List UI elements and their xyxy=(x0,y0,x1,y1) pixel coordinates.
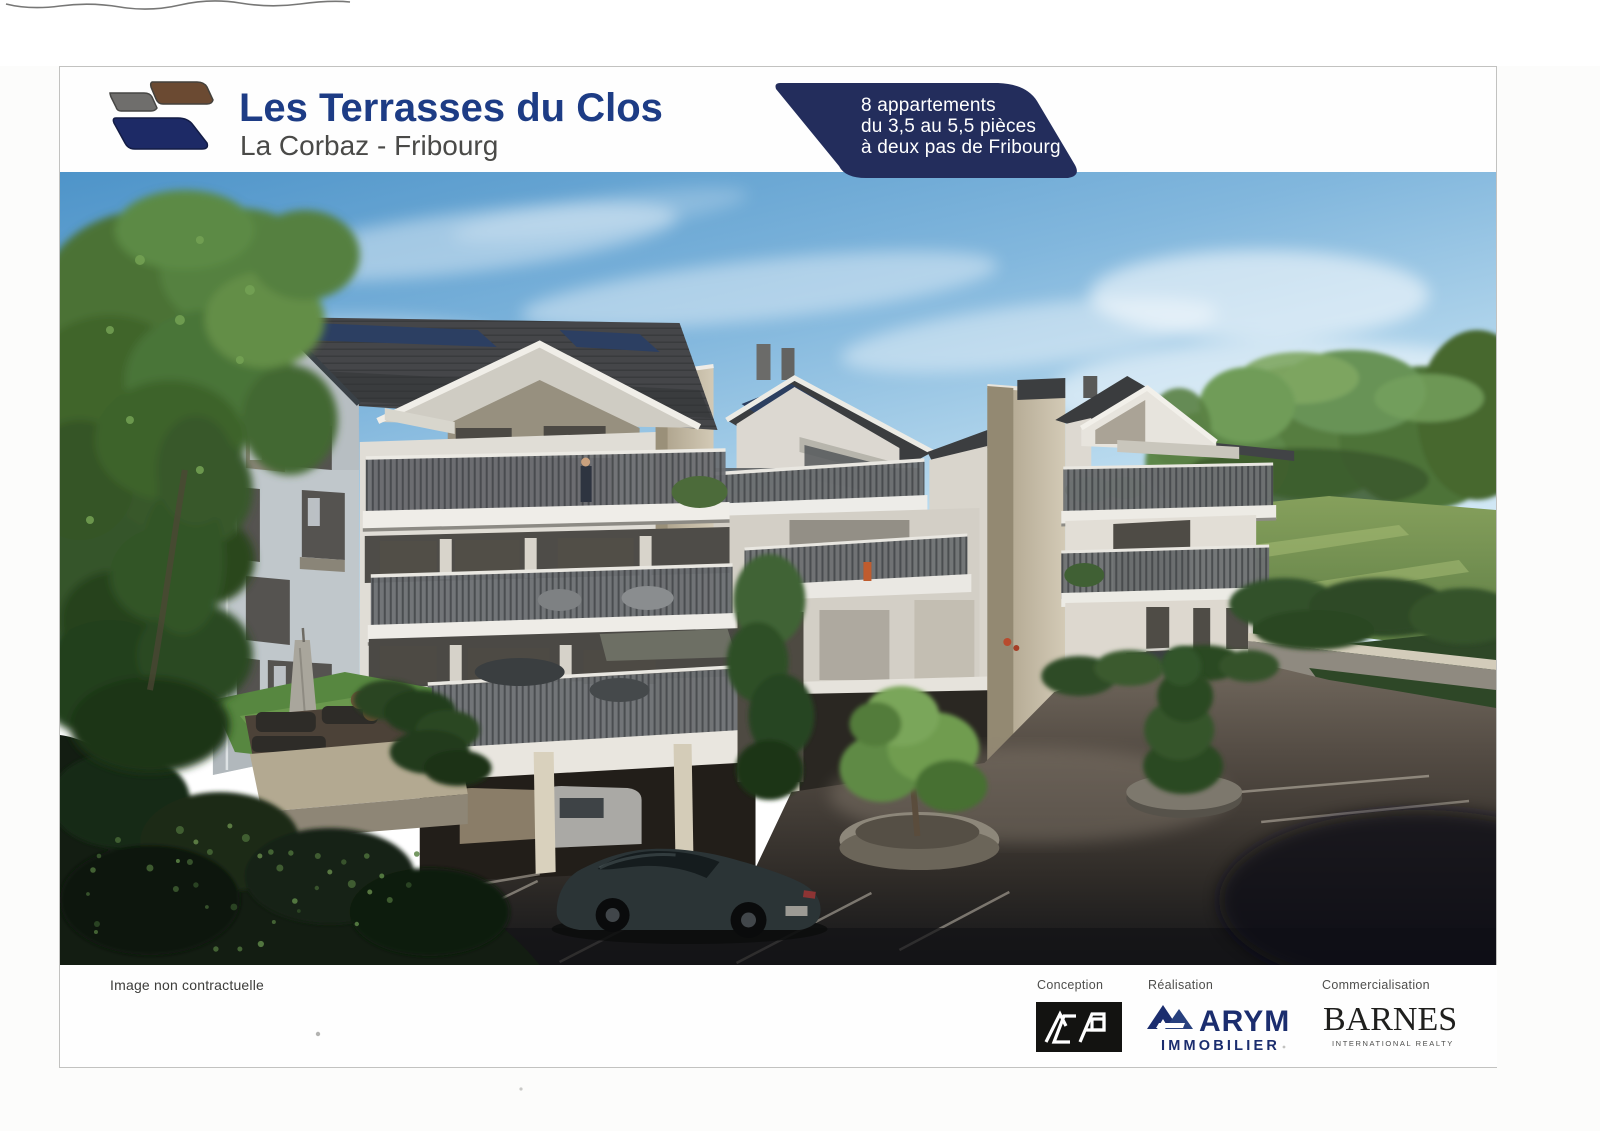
svg-text:IMMOBILIER: IMMOBILIER xyxy=(1161,1038,1280,1053)
svg-text:ARYM: ARYM xyxy=(1199,1005,1290,1038)
